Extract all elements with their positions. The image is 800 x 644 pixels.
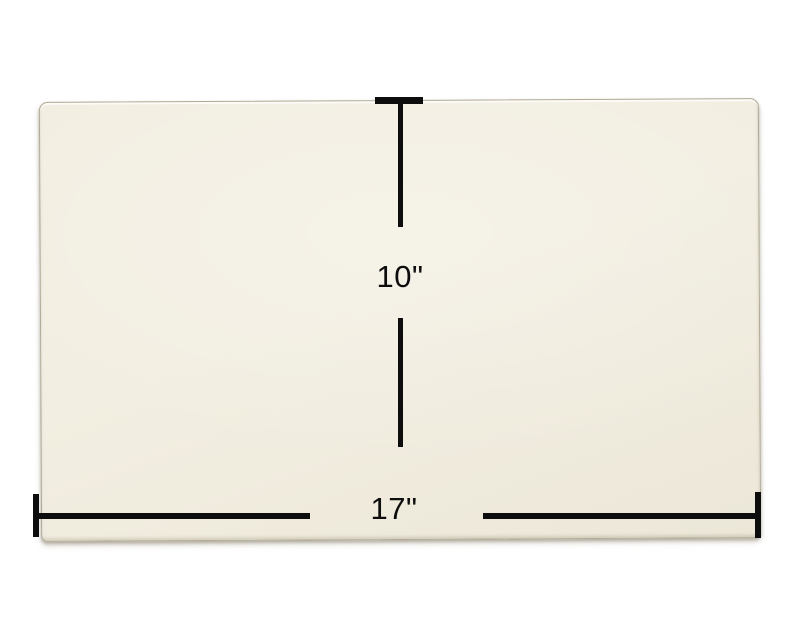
height-dimension-label: 10" (377, 259, 424, 295)
height-dimension-line-lower (398, 318, 403, 447)
width-dimension-right-cap (755, 492, 761, 538)
width-dimension-line-left (39, 513, 310, 519)
diagram-canvas: 10" 17" (0, 0, 800, 644)
width-dimension-label: 17" (371, 491, 418, 527)
width-dimension-line-right (483, 513, 757, 519)
height-dimension-top-cap (375, 97, 423, 104)
height-dimension-line-upper (398, 104, 403, 227)
